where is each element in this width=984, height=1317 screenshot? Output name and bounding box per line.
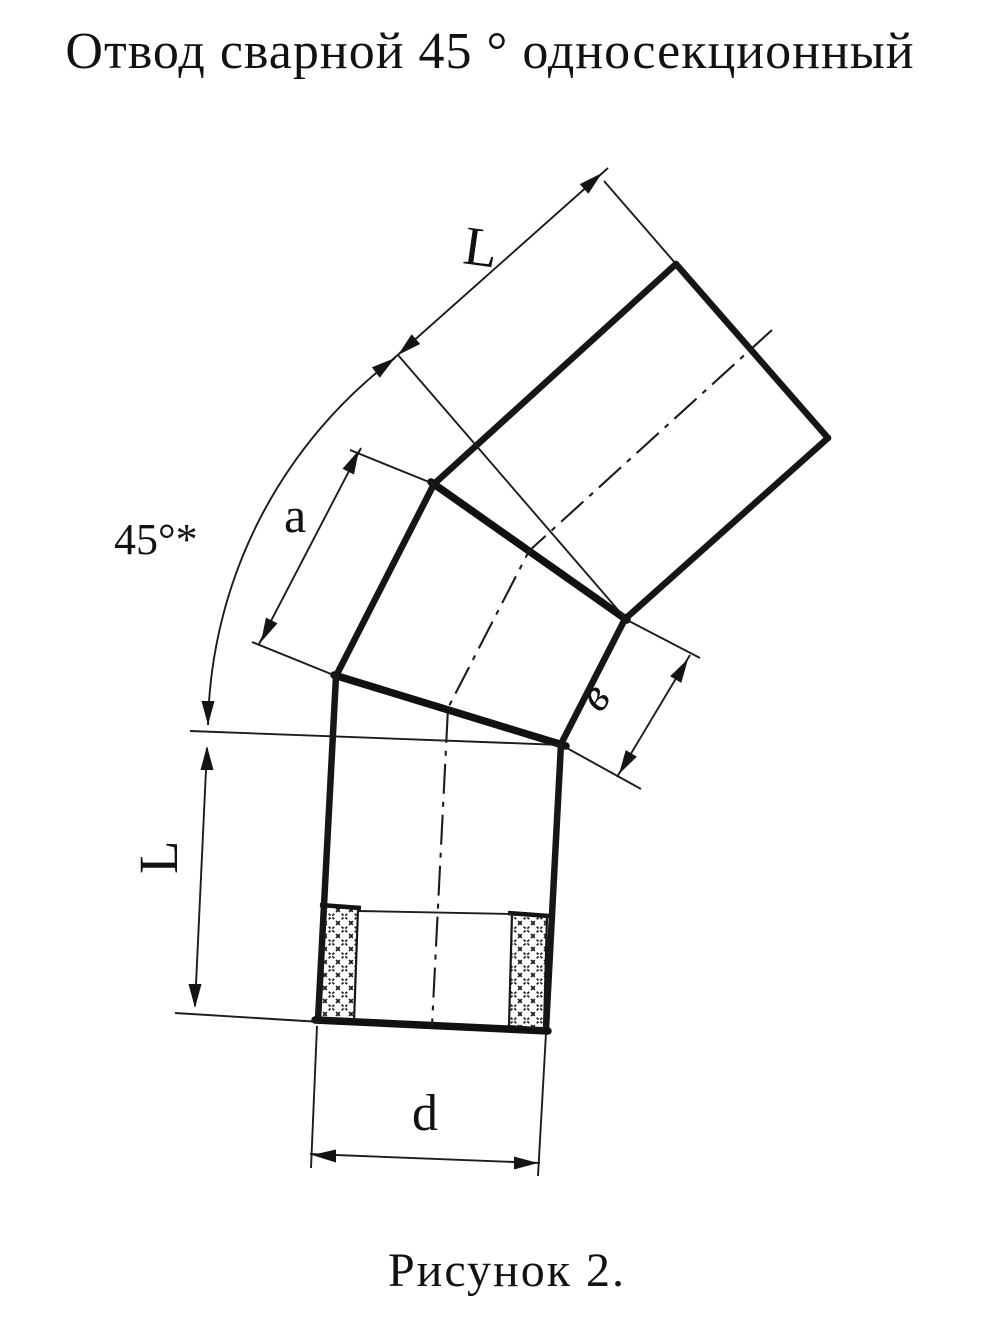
right-wall-section-top-bar — [508, 913, 549, 916]
diameter-arrow-left — [312, 1150, 336, 1163]
top-length-label: L — [460, 215, 502, 280]
pipe-axis-centerline — [432, 330, 772, 1026]
elbow-technical-drawing: L 45°* a в — [0, 0, 984, 1317]
wall-section-hatching — [319, 905, 549, 1029]
left-wall-hatched-section — [319, 906, 358, 1022]
middle-section-left-edge — [336, 484, 434, 676]
angle-arc-arrow-bottom — [202, 701, 215, 725]
upper-pipe-end-face — [676, 264, 828, 438]
diameter-extension-left — [311, 1026, 317, 1168]
top-length-extension-upper — [604, 181, 676, 264]
bottom-length-label: L — [128, 840, 189, 874]
diameter-extension-right — [538, 1033, 546, 1176]
section-edge-extension-lower — [252, 642, 336, 676]
right-wall-hatched-section — [509, 913, 547, 1029]
lower-weld-seam — [334, 675, 566, 746]
diameter-label: d — [412, 1085, 438, 1142]
diameter-arrow-right — [514, 1157, 538, 1170]
scanned-drawing-page: Отвод сварной 45 ° односекционный — [0, 0, 984, 1317]
figure-caption: Рисунок 2. — [30, 1243, 984, 1298]
upper-pipe-section — [434, 264, 828, 619]
bottom-length-arrow-top — [201, 746, 214, 770]
section-width-arrow-upper — [670, 659, 688, 683]
bottom-length-arrow-bottom — [189, 984, 202, 1008]
bore-inner-line — [358, 911, 512, 914]
dimension-diameter: d — [310, 1026, 546, 1176]
section-width-extension-upper — [627, 620, 700, 658]
left-wall-section-top-bar — [320, 905, 361, 908]
dimension-section-width: в — [565, 620, 700, 789]
top-length-dimension-line — [392, 168, 608, 360]
middle-section — [336, 484, 625, 744]
bottom-length-extension-top — [190, 731, 562, 745]
bend-angle-dimension: 45°* — [114, 358, 395, 725]
diameter-dimension-line — [310, 1154, 540, 1163]
section-edge-dimension-line — [259, 448, 361, 644]
middle-section-right-edge — [561, 619, 625, 744]
section-edge-label: a — [284, 487, 306, 543]
lower-pipe-right-edge — [546, 744, 561, 1029]
section-edge-extension-upper — [350, 450, 434, 484]
dimension-section-edge: a — [252, 448, 434, 676]
bend-angle-label: 45°* — [114, 515, 198, 564]
section-edge-arrow-lower — [261, 618, 278, 642]
bottom-length-extension-bottom — [175, 1013, 321, 1022]
section-edge-arrow-upper — [343, 450, 360, 475]
section-width-arrow-lower — [619, 750, 637, 774]
upper-pipe-right-edge — [625, 438, 828, 619]
bottom-length-dimension-line — [195, 748, 207, 1006]
